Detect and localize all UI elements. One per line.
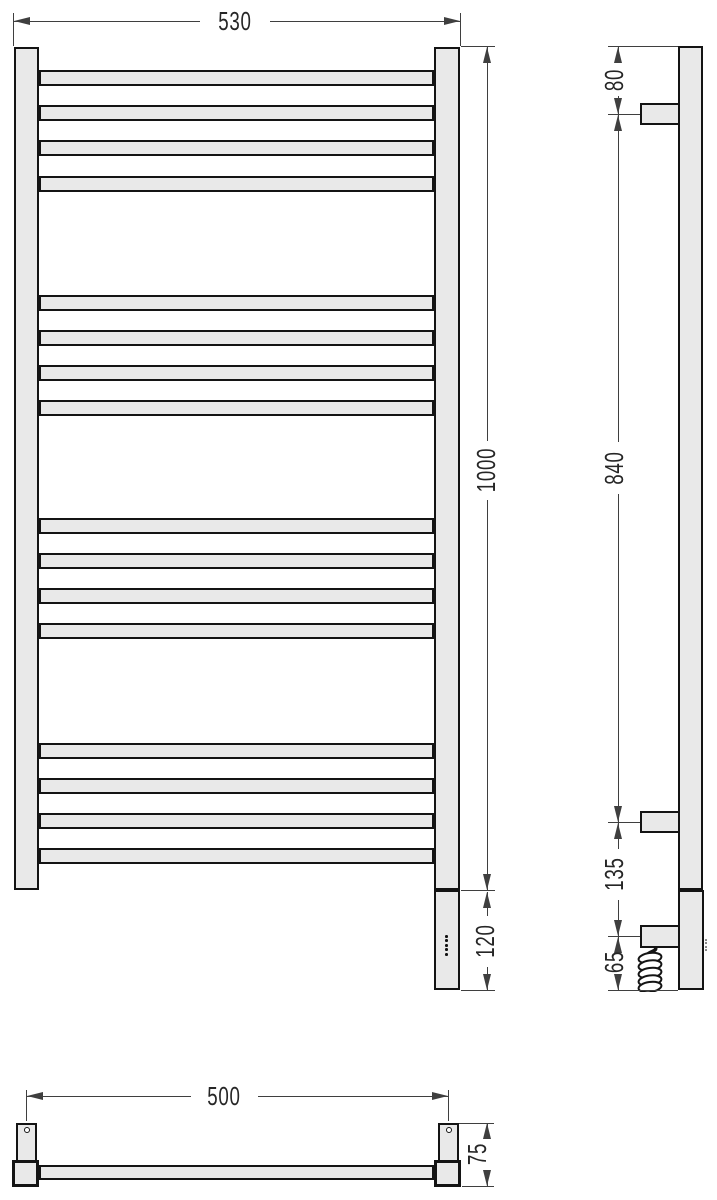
screw-hole <box>446 1127 452 1133</box>
dim-line <box>258 1096 448 1097</box>
dim-arrowhead <box>483 1123 491 1139</box>
extension-line <box>448 1090 449 1121</box>
extension-line <box>462 1186 494 1187</box>
plan-view: 500 75 <box>0 0 717 1200</box>
plan-rail-bar <box>39 1165 434 1180</box>
screw-hole <box>24 1127 30 1133</box>
dim-arrowhead <box>483 1170 491 1186</box>
dim-line <box>27 1096 191 1097</box>
dim-label: 500 <box>207 1083 240 1109</box>
plan-endcap-left <box>12 1160 39 1187</box>
towel-rail-technical-drawing: 530 1000 120 <box>0 0 717 1200</box>
dim-arrowhead <box>432 1092 448 1100</box>
dim-label: 75 <box>464 1143 490 1165</box>
dim-arrowhead <box>27 1092 43 1100</box>
plan-endcap-right <box>434 1160 461 1187</box>
